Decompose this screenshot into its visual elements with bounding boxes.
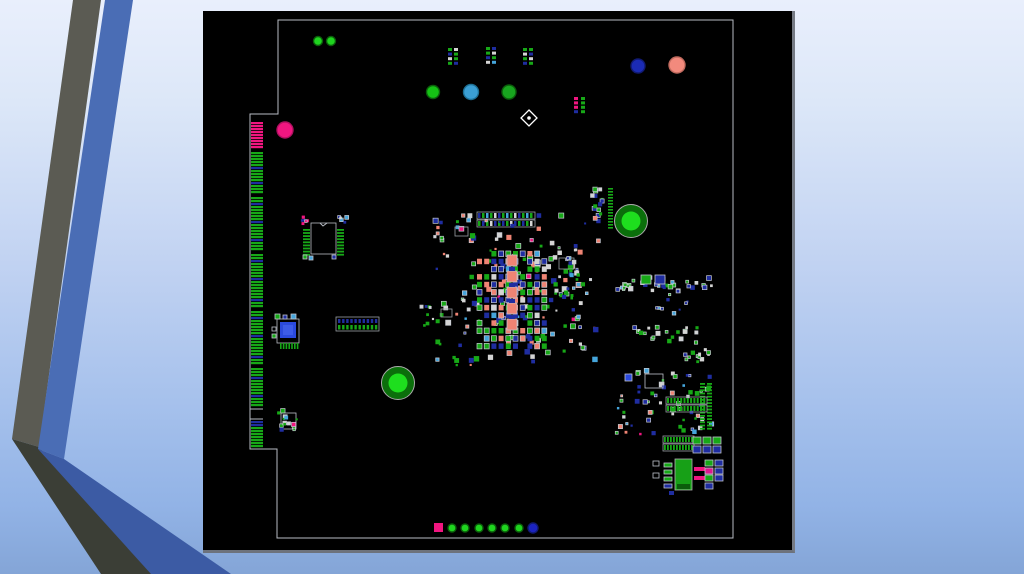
component-pads — [581, 110, 585, 113]
component-field-pad — [631, 425, 633, 427]
pin-header-row — [693, 406, 695, 411]
component-field-pad — [682, 419, 684, 421]
component-row-pad — [655, 325, 659, 329]
pin-header-row — [682, 445, 684, 450]
component-cluster-pad — [593, 187, 597, 191]
dense-component-field-pad — [530, 238, 533, 241]
component-cluster-pad — [599, 188, 602, 191]
bga-grid-pad — [520, 251, 525, 257]
component-cluster-pad — [277, 411, 280, 414]
component-cluster-pad — [569, 261, 573, 265]
edge-connector-pad — [251, 239, 263, 241]
dense-component-field-pad — [559, 213, 564, 218]
dense-component-field-pad — [537, 213, 542, 218]
edge-connector-pad — [251, 350, 263, 352]
pad-square-blue — [693, 446, 701, 453]
pad-square — [705, 468, 713, 474]
pin-header-column — [700, 418, 705, 420]
via-dot-salmon — [669, 57, 685, 73]
component-row-pad — [688, 356, 691, 359]
component-row-pad — [667, 339, 671, 343]
ic-corner-pads-pad — [339, 217, 342, 220]
dense-component-field-pad — [524, 349, 529, 354]
component-field-pad — [662, 385, 666, 389]
bga-grid-pad — [520, 313, 525, 319]
pin-header-row — [670, 398, 672, 403]
ic-side-pads — [337, 229, 344, 231]
component-cluster-pad — [567, 287, 570, 290]
edge-connector-pad — [251, 386, 263, 388]
pad-strip — [502, 213, 505, 218]
component-field-pad — [694, 417, 696, 419]
edge-connector-pad — [251, 424, 263, 426]
bottom-marker-green — [488, 524, 496, 532]
edge-connector-pad — [251, 269, 263, 271]
pin-header-row — [679, 437, 681, 442]
component-field-pad — [673, 374, 677, 378]
dense-component-field-pad — [436, 268, 438, 270]
ic-side-pads — [337, 241, 344, 243]
dense-component-field-pad — [462, 291, 466, 295]
dense-component-field-pad — [553, 255, 557, 259]
edge-connector-pad — [251, 326, 263, 328]
edge-connector-pad — [251, 442, 263, 444]
dense-component-field-pad — [472, 262, 476, 266]
dense-component-field-pad — [497, 233, 502, 238]
pin-header-row — [680, 398, 682, 403]
pad-square-blue — [713, 446, 721, 453]
component-pads — [608, 188, 613, 190]
component-row-pad — [698, 356, 701, 359]
dense-component-field-pad — [589, 278, 591, 280]
bga-grid-pad — [491, 274, 496, 280]
dense-component-field-pad — [572, 318, 576, 322]
pin-header-row — [680, 406, 682, 411]
component-cluster-pad — [280, 428, 284, 432]
component-field-pad — [671, 413, 674, 416]
component-pads — [581, 101, 585, 104]
pin-header-row — [690, 406, 692, 411]
connector-strip-row — [338, 325, 340, 330]
pin-header-column — [707, 405, 712, 407]
component-field-pad — [635, 399, 640, 404]
dense-component-field-pad — [455, 313, 458, 316]
pin-header-column — [707, 393, 712, 395]
component-field-pad — [636, 372, 640, 376]
pad-strip — [502, 221, 505, 226]
bga-grid-pad — [542, 343, 547, 349]
pad-strip — [530, 221, 533, 226]
bga-grid-pad — [491, 328, 496, 334]
component-field-pad — [639, 433, 641, 435]
bga-grid-pad — [491, 290, 496, 296]
edge-connector-pad — [251, 341, 263, 343]
edge-connector-pad — [251, 140, 263, 142]
bga-grid-pad — [484, 282, 489, 288]
edge-connector-pad — [251, 395, 263, 397]
ic-side-pads — [303, 248, 310, 250]
bga-grid-pad — [535, 313, 540, 319]
edge-connector-pad — [251, 128, 263, 130]
edge-connector-pad — [251, 143, 263, 145]
edge-connector-pad — [251, 392, 263, 394]
bga-grid-pad — [477, 328, 482, 334]
component-field-pad — [696, 414, 699, 417]
pin-header-row — [667, 398, 669, 403]
component-pads — [608, 224, 613, 226]
component-row-pad — [698, 353, 701, 356]
ic-side-pads — [303, 238, 310, 240]
bottom-marker-green — [448, 524, 456, 532]
pin-header-column — [707, 415, 712, 417]
component-pads — [492, 56, 496, 59]
bga-grid-pad — [527, 290, 532, 296]
pin-header-column — [700, 425, 705, 427]
edge-connector-pad — [251, 374, 263, 376]
pad-square-green — [713, 437, 721, 444]
bga-center-pad — [509, 283, 515, 287]
edge-connector-pad — [251, 433, 263, 435]
component-cluster-pad — [287, 422, 290, 425]
dense-component-field-pad — [555, 310, 557, 312]
edge-connector-pad — [251, 260, 263, 262]
pcb-layout-image — [203, 11, 795, 553]
component-pads — [529, 62, 533, 65]
bga-grid-pad — [535, 297, 540, 303]
bga-grid-pad — [535, 290, 540, 296]
dense-component-field-pad — [488, 355, 493, 360]
edge-connector-pad — [251, 218, 263, 220]
component-field-pad — [622, 411, 625, 414]
pin-header-row — [676, 445, 678, 450]
bga-grid-pad — [535, 282, 540, 288]
dense-component-field-pad — [564, 269, 569, 274]
edge-connector-pad — [251, 158, 263, 160]
pin-header-row — [670, 437, 672, 442]
component-cluster-pad — [296, 418, 298, 420]
pin-header-row — [691, 445, 693, 450]
ic-body-band — [677, 484, 690, 489]
via-dot-green — [427, 86, 440, 99]
component-field-pad — [650, 391, 654, 395]
bga-grid-pad — [535, 266, 540, 272]
bga-grid-pad — [520, 282, 525, 288]
edge-connector-pad — [251, 173, 263, 175]
pad-strip — [522, 221, 525, 226]
component-field-pad — [625, 431, 628, 434]
component-pads — [448, 57, 452, 60]
component-cluster-pad — [566, 257, 569, 260]
pin-header-row — [700, 406, 702, 411]
component-pads — [486, 56, 490, 59]
ic-corner-pads-pad — [301, 222, 304, 225]
pin-header-column — [707, 421, 712, 423]
edge-connector-pad — [251, 137, 263, 139]
component-row-pad — [710, 284, 713, 287]
bga-grid-pad — [499, 336, 504, 342]
bga-center-bar — [507, 271, 517, 282]
dense-component-field-pad — [570, 294, 573, 297]
edge-connector-pad — [251, 314, 263, 316]
component-cluster-pad — [598, 202, 602, 206]
edge-connector-pad — [251, 338, 263, 340]
edge-connector-pad — [251, 427, 263, 429]
pin-header-row — [679, 445, 681, 450]
component-cluster-pad — [426, 313, 429, 316]
edge-connector-pad — [251, 134, 263, 136]
component-pads — [574, 110, 578, 113]
pad-strip — [514, 213, 517, 218]
component-pads — [454, 62, 458, 65]
component-row-pad — [639, 331, 643, 335]
ic-pad — [653, 461, 659, 466]
ic-pad — [272, 327, 276, 331]
slide-canvas[interactable] — [0, 0, 1024, 574]
edge-connector-pad — [251, 299, 263, 301]
component-field-pad — [622, 416, 625, 419]
bga-grid-pad — [520, 290, 525, 296]
pin-header-column — [700, 393, 705, 395]
component-row-pad — [691, 351, 695, 355]
component-field-pad — [647, 418, 651, 422]
edge-connector-pad — [251, 323, 263, 325]
component-field-pad — [654, 394, 657, 397]
ic-bottom-pads — [283, 343, 285, 349]
bga-grid-pad — [542, 290, 547, 296]
edge-connector-pad — [251, 212, 263, 214]
pin-header-column — [707, 402, 712, 404]
bga-grid-pad — [499, 259, 504, 265]
dense-component-field-pad — [523, 258, 527, 262]
component-field-pad — [687, 395, 690, 398]
ic-bottom-pads — [291, 343, 293, 349]
via-dot-green — [327, 37, 336, 46]
component-cluster-pad — [599, 212, 602, 215]
component-row-pad — [647, 327, 650, 330]
component-field-pad — [648, 410, 652, 414]
component-pads — [529, 53, 533, 56]
edge-connector-pad — [251, 296, 263, 298]
fiducial-icon-center — [527, 116, 531, 120]
edge-connector-pad — [251, 230, 263, 232]
bga-grid-pad — [491, 282, 496, 288]
bga-grid-pad — [535, 328, 540, 334]
edge-connector-pad — [251, 224, 263, 226]
edge-connector-pad — [251, 272, 263, 274]
bga-grid-pad — [491, 259, 496, 265]
bga-grid-pad — [484, 297, 489, 303]
dense-component-field-pad — [456, 364, 458, 366]
pin-header-row — [684, 406, 686, 411]
component-cluster-pad — [672, 311, 676, 315]
component-cluster-pad — [432, 318, 434, 320]
pin-header-column — [700, 383, 705, 385]
connector-strip-row — [342, 319, 344, 323]
pad-strip — [482, 213, 485, 218]
dense-component-field-pad — [470, 275, 474, 279]
component-cluster-pad — [564, 291, 568, 295]
component-pads — [581, 106, 585, 109]
dense-component-field-pad — [576, 268, 578, 270]
edge-connector-pad — [251, 311, 263, 313]
ic-body-outline — [311, 223, 336, 254]
via-dot-magenta — [277, 122, 293, 138]
component-pads — [454, 53, 458, 56]
component-row-pad — [651, 289, 654, 292]
pad-strip — [490, 221, 493, 226]
bga-grid-pad — [484, 274, 489, 280]
connector-strip-row — [375, 325, 377, 330]
edge-connector-pad — [251, 356, 263, 358]
component-row-pad — [695, 326, 698, 329]
edge-connector-pad — [251, 203, 263, 205]
pad-square-green — [703, 437, 711, 444]
component-row-pad — [656, 331, 661, 336]
pin-header-column — [707, 386, 712, 388]
pin-header-row — [673, 437, 675, 442]
bga-grid-pad — [520, 297, 525, 303]
bga-center-bar — [507, 255, 517, 266]
pin-header-column — [707, 428, 712, 430]
ic-pad — [272, 334, 276, 338]
component-pads — [523, 57, 527, 60]
ic-side-pads — [303, 251, 310, 253]
component-cluster-pad — [562, 295, 566, 299]
dense-component-field-pad — [540, 245, 543, 248]
edge-connector-pad — [251, 398, 263, 400]
via-dot-darkblue — [631, 59, 645, 73]
bga-grid-pad — [527, 266, 532, 272]
bga-grid-pad — [513, 336, 518, 342]
bga-grid-pad — [520, 305, 525, 311]
ic-side-pads — [337, 238, 344, 240]
ic-bottom-pads — [297, 343, 299, 349]
connector-strip-row — [367, 319, 369, 323]
component-row-pad — [707, 276, 712, 281]
connector-strip-row — [350, 325, 352, 330]
connector-strip-row — [371, 325, 373, 330]
dense-component-field-pad — [469, 358, 474, 363]
edge-connector-pad — [251, 335, 263, 337]
dense-component-field-pad — [446, 254, 449, 257]
via-dot-green — [314, 37, 323, 46]
component-cluster-pad — [668, 293, 670, 295]
component-field-pad — [620, 399, 623, 402]
edge-connector-pad — [251, 167, 263, 169]
ic-side-pads — [337, 254, 344, 256]
edge-connector-pad — [251, 266, 263, 268]
component-pads — [574, 106, 578, 109]
pad-strip — [526, 221, 529, 226]
bga-grid-pad — [527, 251, 532, 257]
ic-side-pads — [337, 251, 344, 253]
pin-header-row — [670, 406, 672, 411]
component-field-pad — [692, 430, 696, 434]
component-field-pad — [617, 407, 619, 409]
edge-connector-pad — [251, 170, 263, 172]
pin-header-column — [700, 415, 705, 417]
component-pads — [608, 218, 613, 220]
pin-header-column — [707, 409, 712, 411]
bga-grid-pad — [477, 320, 482, 326]
dense-component-field-pad — [572, 308, 575, 311]
edge-connector-pad — [251, 155, 263, 157]
component-field-pad — [686, 374, 689, 377]
component-pad-large — [655, 275, 665, 284]
edge-connector-pad — [251, 347, 263, 349]
bga-grid-pad — [491, 336, 496, 342]
pin-header-row — [687, 406, 689, 411]
component-pads — [448, 62, 452, 65]
edge-connector-pad — [251, 317, 263, 319]
component-field-pad — [670, 391, 674, 395]
dense-component-field-pad — [474, 356, 479, 361]
dense-component-field-pad — [593, 216, 597, 220]
pin-header-row — [685, 445, 687, 450]
bga-grid-pad — [542, 274, 547, 280]
connector-strip-row — [342, 325, 344, 330]
component-field-pad — [626, 422, 628, 424]
bga-grid-pad — [542, 305, 547, 311]
dense-component-field-pad — [596, 239, 600, 243]
dense-component-field-pad — [579, 326, 582, 329]
pad-strip — [478, 221, 481, 226]
pin-header-row — [688, 437, 690, 442]
component-cluster-pad — [656, 307, 658, 309]
component-cluster-pad — [577, 283, 581, 287]
dense-component-field-pad — [472, 301, 477, 306]
bga-grid-pad — [542, 266, 547, 272]
component-cluster-pad — [555, 289, 558, 292]
dense-component-field-pad — [456, 220, 459, 223]
bga-grid-pad — [484, 259, 489, 265]
via-dot-lightblue — [464, 85, 479, 100]
bga-grid-pad — [542, 297, 547, 303]
dense-component-field-pad — [436, 358, 439, 361]
bga-grid-pad — [477, 259, 482, 265]
bga-grid-pad — [491, 320, 496, 326]
edge-connector-pad — [251, 401, 263, 403]
dense-component-field-pad — [461, 214, 464, 217]
edge-connector-pad — [251, 257, 263, 259]
ic-side-pads — [337, 235, 344, 237]
bottom-marker-green — [501, 524, 509, 532]
component-pads — [529, 57, 533, 60]
bga-grid-pad — [535, 259, 540, 265]
pad-strip — [498, 213, 501, 218]
bga-grid-pad — [477, 274, 482, 280]
edge-connector-pad — [251, 436, 263, 438]
component-pad-large — [641, 275, 651, 284]
ic-pad — [664, 470, 672, 474]
edge-connector-pad — [251, 305, 263, 307]
ic-die-blue-inner — [283, 325, 293, 335]
dense-component-field-pad — [499, 221, 501, 223]
component-pads — [608, 197, 613, 199]
component-pads — [608, 200, 613, 202]
component-cluster-pad — [426, 322, 430, 326]
bga-grid-pad — [491, 313, 496, 319]
edge-connector-pad — [251, 131, 263, 133]
connector-strip-row — [346, 325, 348, 330]
bga-grid-pad — [527, 343, 532, 349]
component-cluster-pad — [679, 309, 681, 311]
component-pads — [608, 206, 613, 208]
pin-header-row — [664, 445, 666, 450]
bga-grid-pad — [499, 290, 504, 296]
connector-strip-row — [367, 325, 369, 330]
bga-grid-pad — [527, 320, 532, 326]
